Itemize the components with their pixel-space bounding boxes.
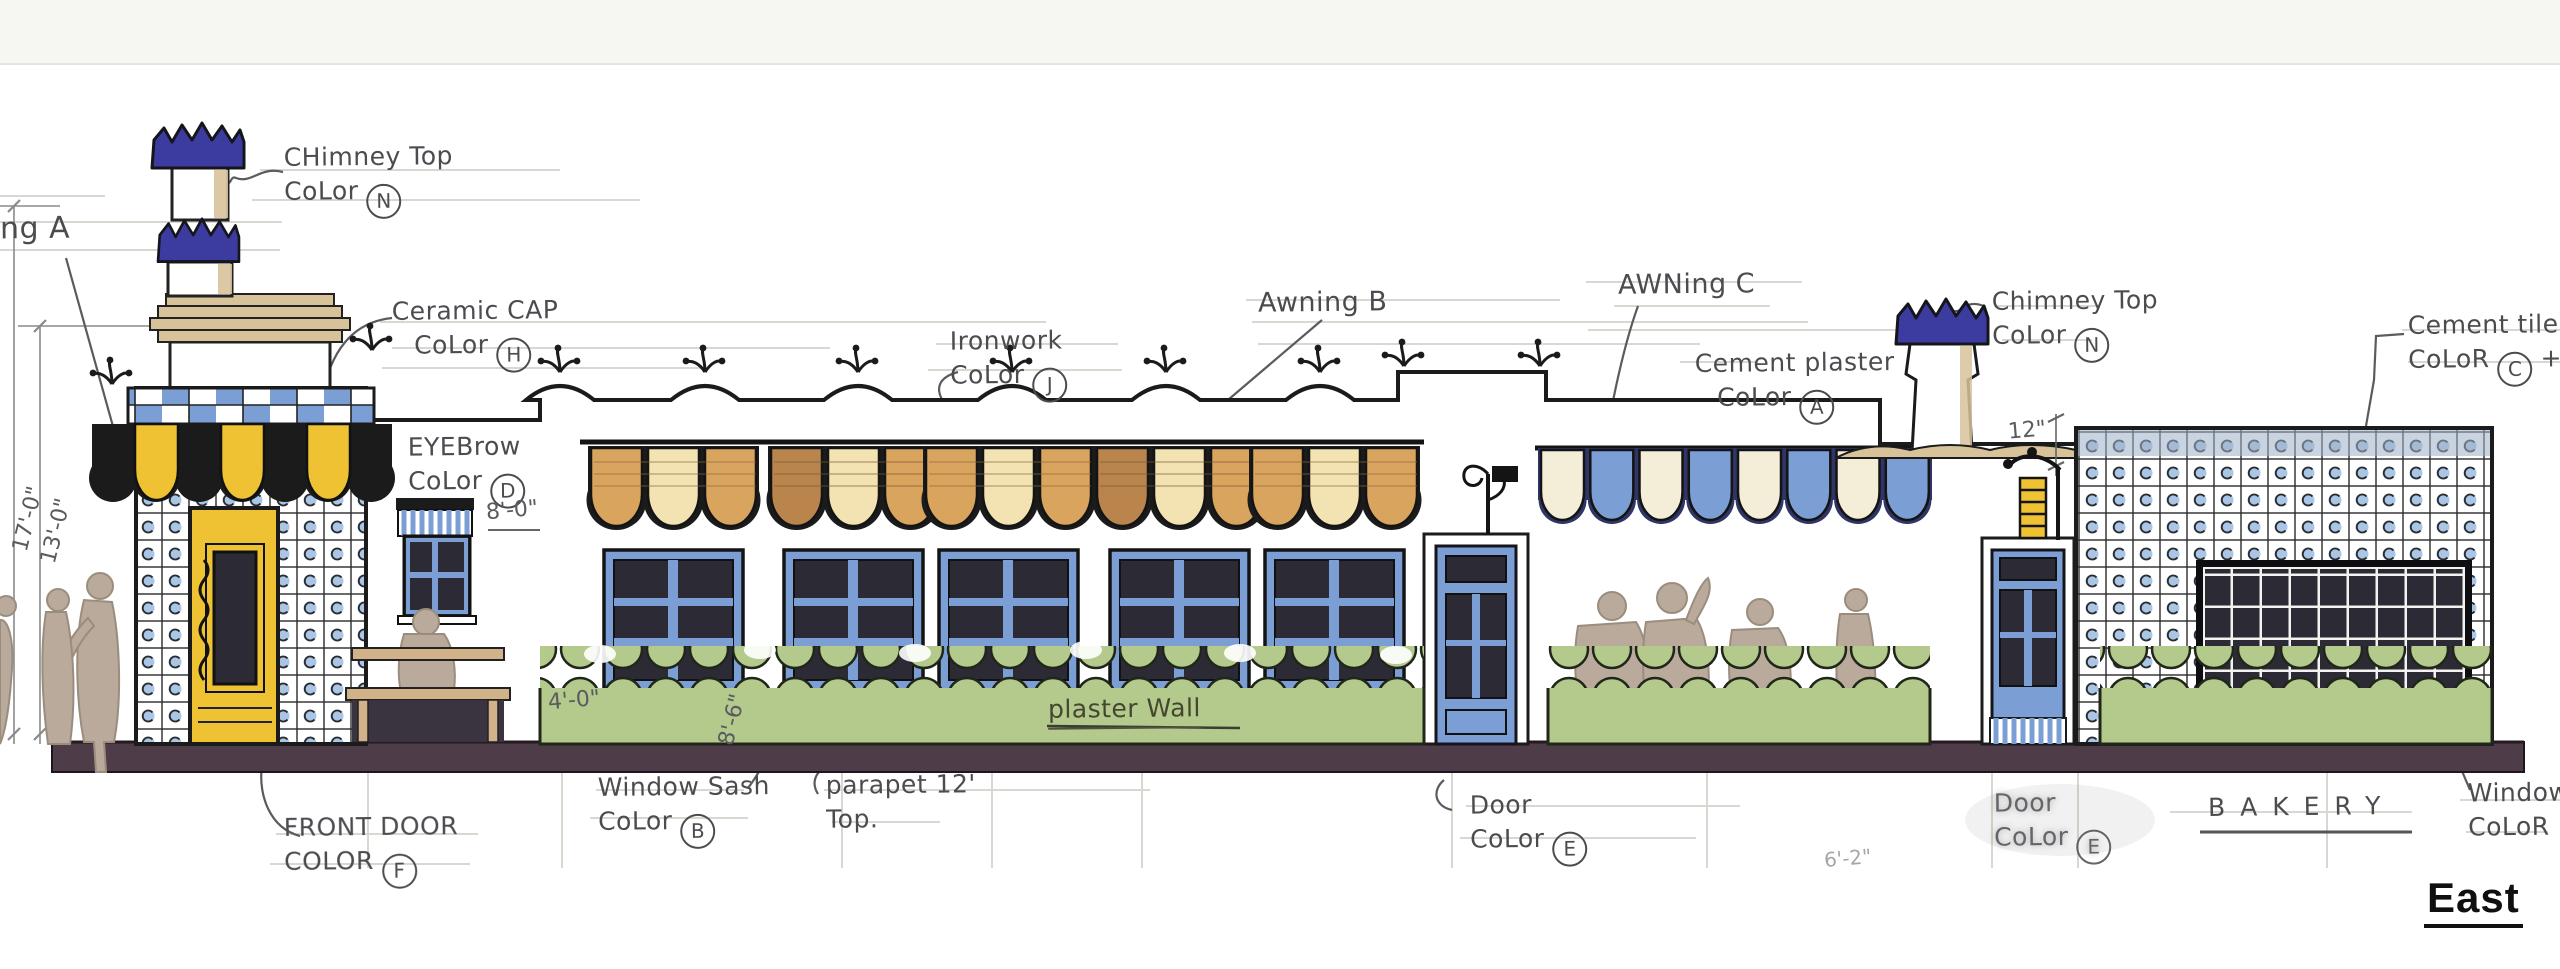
elevation-sheet: { "title": { "elevation_label": "East" }… (0, 0, 2560, 969)
dim-hedge-height: 4'-0" (547, 686, 601, 715)
right-door (1982, 538, 2074, 744)
elevation-title: East (2424, 874, 2523, 928)
annotation-ironwork: Ironwork CoLorJ (950, 323, 1068, 403)
pedestrian-figures (0, 573, 119, 772)
hedge-middle (1548, 646, 1930, 744)
annotation-awning-b: Awning B (1258, 285, 1388, 320)
annotation-parapet-top: parapet 12' Top. (826, 767, 977, 837)
annotation-ceramic-cap: Ceramic CAP CoLorH (392, 293, 559, 373)
annotation-awning-c: AWNing C (1618, 267, 1755, 302)
annotation-front-door: FRONT DOOR COLORF (284, 809, 459, 889)
annotation-door-color-right: Door CoLorE (1994, 785, 2112, 865)
annotation-eyebrow: EYEBrow CoLorD (408, 429, 526, 509)
annotation-plaster-wall: plaster Wall (1048, 691, 1201, 730)
annotation-bakery-sign: BAKERY (2208, 789, 2396, 825)
annotation-awning-a: ng A (0, 212, 70, 247)
hedge-left (540, 641, 1424, 744)
annotation-cement-plaster: Cement plaster CoLorA (1695, 345, 1896, 426)
paper-top-band (0, 0, 2560, 64)
annotation-door-color-mid: Door CoLorE (1470, 787, 1588, 867)
front-door-graphic (190, 508, 278, 744)
annotation-cement-tile: Cement tile CoLoRC+ ( (2408, 307, 2560, 387)
dim-parapet-cap: 12" (2007, 416, 2047, 444)
annotation-window-color-right: Window CoLoR ( (2468, 775, 2560, 844)
awning-b-row (580, 442, 1424, 530)
annotation-chimney-top-left: CHimney Top CoLorN (284, 139, 454, 219)
dim-door-width: 6'-2" (1823, 844, 1872, 872)
eyebrow-window (396, 498, 476, 624)
annotation-chimney-top-right: Chimney Top CoLorN (1992, 283, 2159, 363)
annotation-window-sash: Window Sash CoLorB (598, 769, 771, 849)
hedge-right (2100, 646, 2492, 744)
ground-strip (52, 742, 2524, 772)
dim-eyebrow-height: 8'-0" (485, 496, 539, 525)
middle-door (1424, 534, 1528, 744)
